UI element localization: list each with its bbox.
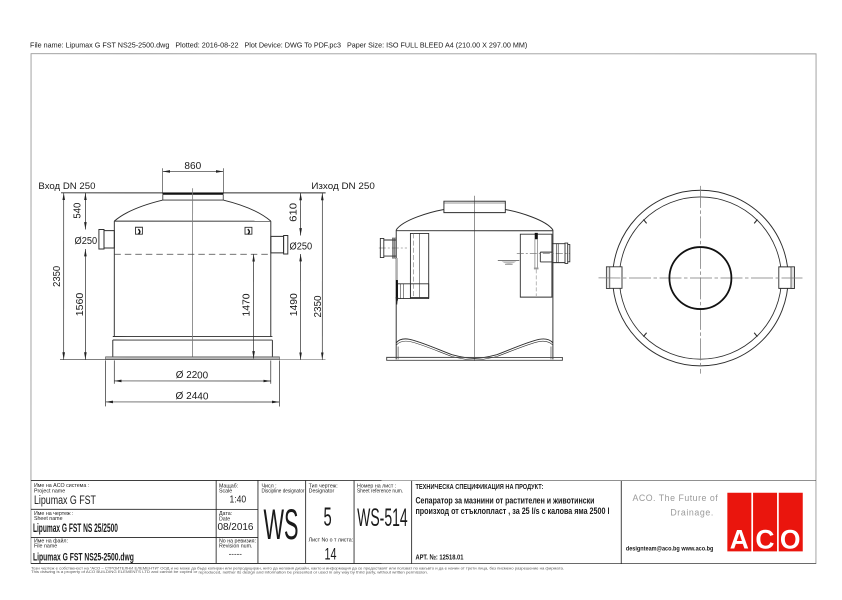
svg-text:Ø250: Ø250	[75, 236, 98, 247]
svg-text:860: 860	[184, 161, 201, 172]
svg-text:ACO. The Future of: ACO. The Future of	[632, 493, 718, 503]
svg-text:Discipline designator: Discipline designator	[261, 488, 304, 494]
svg-text:5: 5	[323, 502, 331, 532]
svg-text:O: O	[780, 525, 801, 555]
svg-text:14: 14	[324, 545, 336, 563]
svg-text:C: C	[755, 525, 774, 555]
svg-text:1:40: 1:40	[229, 495, 246, 506]
svg-text:540: 540	[72, 202, 83, 218]
svg-text:Scale: Scale	[219, 488, 232, 494]
svg-text:Ø 2440: Ø 2440	[175, 391, 208, 402]
svg-text:WS-514: WS-514	[357, 504, 408, 532]
svg-text:Вход DN 250: Вход DN 250	[38, 181, 95, 191]
svg-text:A: A	[730, 525, 749, 555]
svg-text:произход от стъклопласт , за 2: произход от стъклопласт , за 25 l/s с ка…	[415, 506, 609, 517]
svg-text:Изход DN 250: Изход DN 250	[311, 181, 375, 191]
svg-text:Lipumax G FST NS25-2500.dwg: Lipumax G FST NS25-2500.dwg	[33, 551, 134, 563]
svg-text:Ø250: Ø250	[290, 242, 313, 253]
svg-text:АРТ. №: 12518.01: АРТ. №: 12518.01	[415, 553, 464, 562]
svg-text:2350: 2350	[52, 266, 63, 287]
svg-text:ТЕХНИЧЕСКА СПЕЦИФИКАЦИЯ НА ПРО: ТЕХНИЧЕСКА СПЕЦИФИКАЦИЯ НА ПРОДУКТ:	[415, 482, 543, 491]
svg-text:Sheet reference num.: Sheet reference num.	[357, 488, 403, 494]
svg-text:Ø 2200: Ø 2200	[176, 370, 209, 381]
svg-text:Lipumax G FST: Lipumax G FST	[34, 493, 96, 507]
svg-text:2350: 2350	[313, 295, 324, 317]
svg-text:1560: 1560	[75, 292, 86, 316]
svg-text:This drawing is a property of: This drawing is a property of ACO BUILDI…	[31, 570, 428, 574]
svg-text:1490: 1490	[289, 293, 300, 316]
svg-text:File name: File name	[34, 544, 57, 550]
svg-text:Лист No о т листа:: Лист No о т листа:	[309, 537, 354, 543]
svg-text:08/2016: 08/2016	[217, 522, 253, 533]
svg-text:Lipumax G FST NS 25/2500: Lipumax G FST NS 25/2500	[33, 521, 118, 535]
svg-text:Designator: Designator	[309, 488, 335, 494]
svg-text:WS: WS	[264, 501, 299, 549]
svg-text:610: 610	[289, 202, 300, 221]
svg-text:designteam@aco.bg www.aco.bg: designteam@aco.bg www.aco.bg	[626, 545, 714, 552]
svg-text:-----: -----	[229, 549, 243, 558]
svg-text:File name: Lipumax G FST NS25-: File name: Lipumax G FST NS25-2500.dwg P…	[30, 40, 527, 49]
svg-text:Drainage.: Drainage.	[670, 508, 713, 518]
svg-text:1470: 1470	[241, 293, 252, 316]
svg-text:Сепаратор за мазнини от растит: Сепаратор за мазнини от растителен и жив…	[415, 495, 594, 506]
